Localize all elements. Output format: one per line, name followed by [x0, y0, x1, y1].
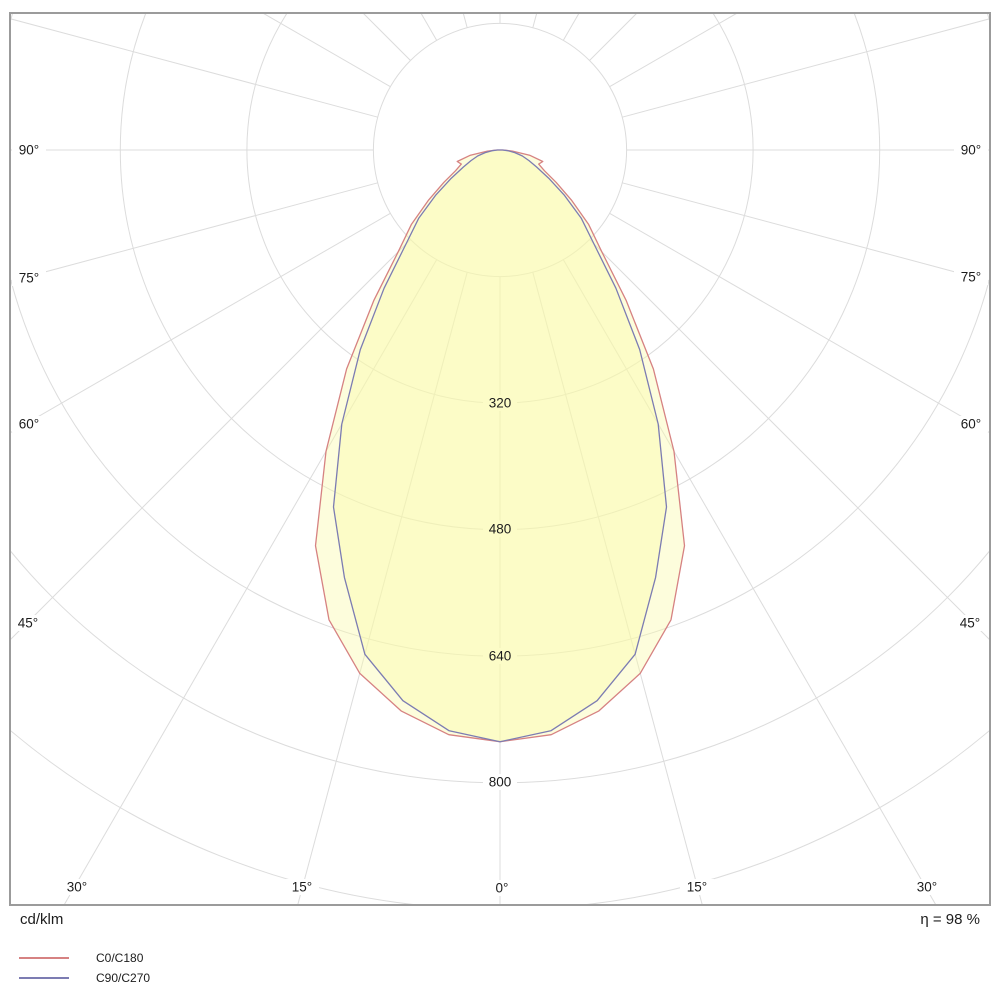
- angle-tick-label: 45°: [18, 616, 38, 631]
- grid-ray: [563, 0, 1000, 40]
- angle-tick-label: 60°: [961, 417, 981, 432]
- legend-item-c90-c270: C90/C270: [19, 968, 150, 988]
- efficiency-label: η = 98 %: [920, 911, 980, 928]
- radial-tick-label: 640: [489, 649, 512, 664]
- radial-tick-label: 480: [489, 522, 512, 537]
- angle-tick-label: 90°: [19, 143, 39, 158]
- angle-tick-label: 45°: [960, 616, 980, 631]
- legend-item-c0-c180: C0/C180: [19, 948, 150, 968]
- legend-line-blue: [19, 977, 69, 979]
- photometric-diagram-page: 32048064080090°75°60°45°90°75°60°45°30°1…: [0, 0, 1000, 1000]
- legend: C0/C180 C90/C270: [19, 948, 150, 988]
- angle-tick-label: 15°: [687, 880, 707, 895]
- legend-label: C0/C180: [96, 951, 143, 965]
- legend-line-red: [19, 957, 69, 959]
- grid-ray: [622, 0, 1000, 117]
- grid-ray: [0, 0, 378, 117]
- grid-ray: [0, 0, 411, 61]
- angle-tick-label: 30°: [917, 880, 937, 895]
- angle-tick-label: 15°: [292, 880, 312, 895]
- angle-tick-label: 30°: [67, 880, 87, 895]
- legend-label: C90/C270: [96, 971, 150, 985]
- polar-diagram: 32048064080090°75°60°45°90°75°60°45°30°1…: [0, 0, 1000, 1000]
- grid-ray: [622, 183, 1000, 513]
- angle-tick-label: 60°: [19, 417, 39, 432]
- units-label: cd/klm: [20, 911, 63, 928]
- radial-tick-label: 320: [489, 396, 512, 411]
- grid-ray: [0, 183, 378, 513]
- angle-tick-label: 0°: [496, 881, 509, 896]
- angle-tick-label: 75°: [961, 270, 981, 285]
- radial-tick-label: 800: [489, 775, 512, 790]
- angle-tick-label: 90°: [961, 143, 981, 158]
- angle-tick-label: 75°: [19, 271, 39, 286]
- grid-ray: [0, 0, 437, 40]
- grid-ray: [590, 0, 1000, 61]
